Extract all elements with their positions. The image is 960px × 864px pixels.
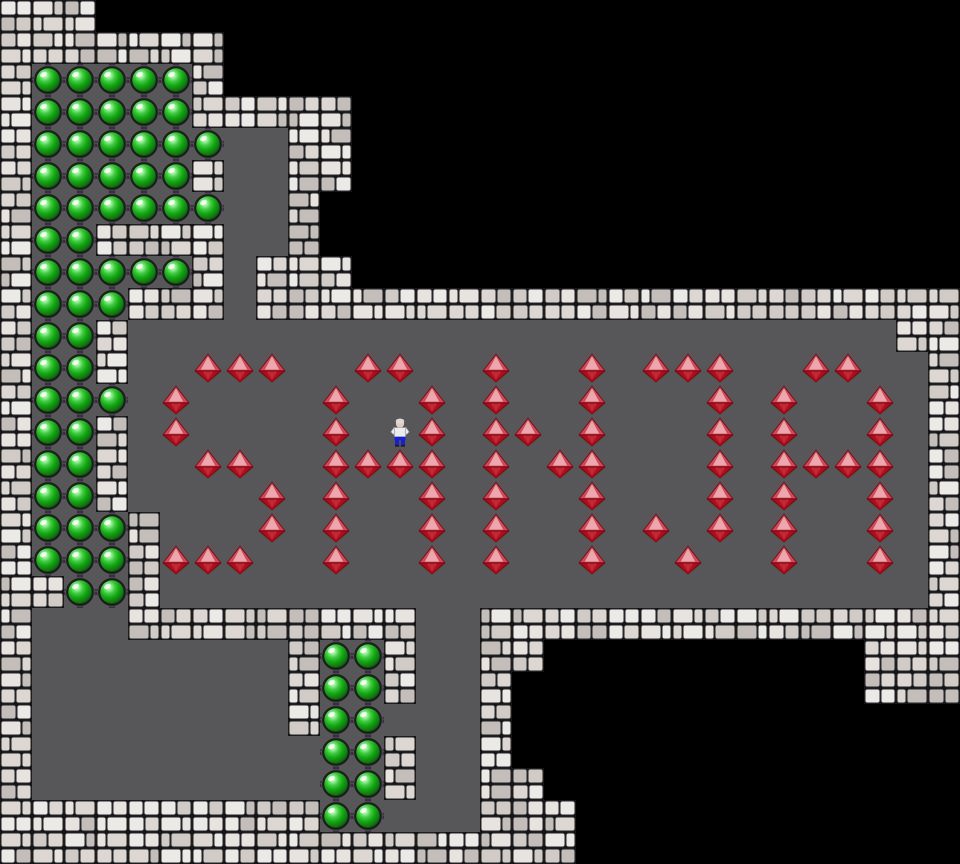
goal-ball[interactable] (162, 258, 191, 287)
wall-tile (0, 736, 32, 768)
floor-tile[interactable] (704, 320, 736, 352)
floor-tile[interactable] (256, 224, 288, 256)
floor-tile[interactable] (256, 160, 288, 192)
floor-tile[interactable] (256, 704, 288, 736)
floor-tile[interactable] (224, 480, 256, 512)
floor-tile[interactable] (672, 416, 704, 448)
floor-tile[interactable] (736, 480, 768, 512)
floor-tile[interactable] (128, 384, 160, 416)
floor-tile[interactable] (448, 448, 480, 480)
floor-tile[interactable] (448, 384, 480, 416)
goal-ball[interactable] (194, 194, 223, 223)
floor-tile[interactable] (448, 672, 480, 704)
wall-tile (640, 288, 672, 320)
floor-tile[interactable] (448, 640, 480, 672)
floor-tile[interactable] (608, 512, 640, 544)
floor-tile[interactable] (352, 480, 384, 512)
floor-tile[interactable] (224, 160, 256, 192)
goal-ball[interactable] (98, 162, 127, 191)
floor-tile[interactable] (160, 640, 192, 672)
goal-ball[interactable] (322, 738, 351, 767)
floor-tile[interactable] (224, 512, 256, 544)
floor-tile[interactable] (896, 448, 928, 480)
floor-tile[interactable] (640, 544, 672, 576)
floor-tile[interactable] (32, 672, 64, 704)
floor-tile[interactable] (640, 448, 672, 480)
floor-tile[interactable] (96, 640, 128, 672)
floor-tile[interactable] (448, 576, 480, 608)
floor-tile[interactable] (288, 768, 320, 800)
floor-tile[interactable] (800, 320, 832, 352)
floor-tile[interactable] (608, 480, 640, 512)
goal-ball[interactable] (34, 162, 63, 191)
floor-tile[interactable] (128, 480, 160, 512)
wall-tile (160, 608, 192, 640)
floor-tile[interactable] (192, 384, 224, 416)
goal-ball[interactable] (354, 738, 383, 767)
floor-tile[interactable] (352, 320, 384, 352)
goal-ball[interactable] (98, 290, 127, 319)
floor-tile[interactable] (128, 736, 160, 768)
floor-tile[interactable] (704, 576, 736, 608)
floor-tile[interactable] (864, 352, 896, 384)
goal-ball[interactable] (66, 66, 95, 95)
floor-tile[interactable] (96, 672, 128, 704)
floor-tile[interactable] (224, 128, 256, 160)
goal-ball[interactable] (34, 130, 63, 159)
goal-ball[interactable] (34, 290, 63, 319)
floor-tile[interactable] (256, 448, 288, 480)
floor-tile[interactable] (352, 512, 384, 544)
floor-tile[interactable] (736, 448, 768, 480)
floor-tile[interactable] (544, 544, 576, 576)
goal-ball[interactable] (34, 482, 63, 511)
floor-tile[interactable] (352, 544, 384, 576)
floor-tile[interactable] (128, 320, 160, 352)
floor-tile[interactable] (256, 768, 288, 800)
goal-ball[interactable] (130, 130, 159, 159)
floor-tile[interactable] (64, 704, 96, 736)
goal-ball[interactable] (66, 450, 95, 479)
floor-tile[interactable] (384, 576, 416, 608)
floor-tile[interactable] (384, 512, 416, 544)
goal-ball[interactable] (66, 354, 95, 383)
floor-tile[interactable] (256, 384, 288, 416)
floor-tile[interactable] (800, 480, 832, 512)
goal-ball[interactable] (98, 130, 127, 159)
goal-ball[interactable] (130, 258, 159, 287)
floor-tile[interactable] (896, 512, 928, 544)
floor-tile[interactable] (320, 576, 352, 608)
floor-tile[interactable] (224, 736, 256, 768)
sokoban-board[interactable] (0, 0, 960, 864)
goal-ball[interactable] (98, 258, 127, 287)
floor-tile[interactable] (736, 576, 768, 608)
goal-ball[interactable] (66, 162, 95, 191)
floor-tile[interactable] (128, 640, 160, 672)
floor-tile[interactable] (448, 736, 480, 768)
floor-tile[interactable] (896, 352, 928, 384)
floor-tile[interactable] (64, 608, 96, 640)
floor-tile[interactable] (896, 384, 928, 416)
floor-tile[interactable] (192, 736, 224, 768)
floor-tile[interactable] (672, 448, 704, 480)
floor-tile[interactable] (512, 576, 544, 608)
floor-tile[interactable] (32, 640, 64, 672)
goal-ball[interactable] (34, 322, 63, 351)
goal-ball[interactable] (34, 386, 63, 415)
floor-tile[interactable] (416, 576, 448, 608)
floor-tile[interactable] (608, 384, 640, 416)
goal-ball[interactable] (66, 194, 95, 223)
floor-tile[interactable] (768, 576, 800, 608)
floor-tile[interactable] (416, 768, 448, 800)
floor-tile[interactable] (160, 768, 192, 800)
floor-tile[interactable] (832, 416, 864, 448)
floor-tile[interactable] (480, 320, 512, 352)
goal-ball[interactable] (34, 450, 63, 479)
floor-tile[interactable] (32, 736, 64, 768)
goal-ball[interactable] (98, 386, 127, 415)
goal-ball[interactable] (66, 322, 95, 351)
floor-tile[interactable] (608, 352, 640, 384)
floor-tile[interactable] (192, 512, 224, 544)
floor-tile[interactable] (416, 672, 448, 704)
goal-ball[interactable] (162, 98, 191, 127)
floor-tile[interactable] (96, 768, 128, 800)
floor-tile[interactable] (288, 448, 320, 480)
floor-tile[interactable] (832, 512, 864, 544)
floor-tile[interactable] (128, 352, 160, 384)
floor-tile[interactable] (800, 416, 832, 448)
floor-tile[interactable] (160, 512, 192, 544)
floor-tile[interactable] (544, 576, 576, 608)
goal-ball[interactable] (66, 418, 95, 447)
goal-ball[interactable] (98, 514, 127, 543)
floor-tile[interactable] (288, 416, 320, 448)
floor-tile[interactable] (736, 512, 768, 544)
floor-tile[interactable] (512, 544, 544, 576)
goal-ball[interactable] (34, 418, 63, 447)
floor-tile[interactable] (384, 384, 416, 416)
floor-tile[interactable] (192, 480, 224, 512)
floor-tile[interactable] (896, 576, 928, 608)
floor-tile[interactable] (32, 704, 64, 736)
goal-ball[interactable] (354, 802, 383, 831)
goal-ball[interactable] (66, 514, 95, 543)
floor-tile[interactable] (416, 608, 448, 640)
floor-tile[interactable] (672, 480, 704, 512)
floor-tile[interactable] (544, 416, 576, 448)
floor-tile[interactable] (864, 576, 896, 608)
floor-tile[interactable] (640, 576, 672, 608)
floor-tile[interactable] (448, 512, 480, 544)
goal-ball[interactable] (66, 546, 95, 575)
floor-tile[interactable] (864, 320, 896, 352)
goal-ball[interactable] (66, 290, 95, 319)
floor-tile[interactable] (448, 480, 480, 512)
floor-tile[interactable] (576, 576, 608, 608)
floor-tile[interactable] (672, 320, 704, 352)
floor-tile[interactable] (192, 768, 224, 800)
floor-tile[interactable] (800, 576, 832, 608)
floor-tile[interactable] (832, 384, 864, 416)
floor-tile[interactable] (288, 320, 320, 352)
floor-tile[interactable] (224, 768, 256, 800)
floor-tile[interactable] (288, 480, 320, 512)
goal-ball[interactable] (354, 770, 383, 799)
floor-tile[interactable] (128, 416, 160, 448)
floor-tile[interactable] (384, 544, 416, 576)
floor-tile[interactable] (224, 384, 256, 416)
floor-tile[interactable] (416, 736, 448, 768)
floor-tile[interactable] (64, 736, 96, 768)
floor-tile[interactable] (288, 736, 320, 768)
floor-tile[interactable] (160, 672, 192, 704)
floor-tile[interactable] (224, 320, 256, 352)
goal-ball[interactable] (66, 226, 95, 255)
goal-ball[interactable] (322, 642, 351, 671)
floor-tile[interactable] (192, 416, 224, 448)
floor-tile[interactable] (832, 576, 864, 608)
goal-ball[interactable] (322, 802, 351, 831)
floor-tile[interactable] (32, 608, 64, 640)
floor-tile[interactable] (256, 544, 288, 576)
floor-tile[interactable] (224, 704, 256, 736)
floor-tile[interactable] (352, 416, 384, 448)
floor-tile[interactable] (608, 544, 640, 576)
floor-tile[interactable] (256, 672, 288, 704)
floor-tile[interactable] (192, 576, 224, 608)
floor-tile[interactable] (800, 544, 832, 576)
goal-ball[interactable] (34, 226, 63, 255)
floor-tile[interactable] (416, 352, 448, 384)
floor-tile[interactable] (384, 320, 416, 352)
goal-ball[interactable] (130, 194, 159, 223)
floor-tile[interactable] (224, 672, 256, 704)
floor-tile[interactable] (640, 416, 672, 448)
floor-tile[interactable] (672, 512, 704, 544)
floor-tile[interactable] (192, 320, 224, 352)
goal-ball[interactable] (322, 706, 351, 735)
goal-ball[interactable] (354, 642, 383, 671)
floor-tile[interactable] (96, 736, 128, 768)
floor-tile[interactable] (160, 736, 192, 768)
floor-tile[interactable] (736, 320, 768, 352)
goal-ball[interactable] (34, 66, 63, 95)
goal-ball[interactable] (130, 66, 159, 95)
goal-ball[interactable] (162, 162, 191, 191)
floor-tile[interactable] (288, 512, 320, 544)
floor-tile[interactable] (64, 768, 96, 800)
floor-tile[interactable] (544, 480, 576, 512)
floor-tile[interactable] (512, 480, 544, 512)
floor-tile[interactable] (896, 544, 928, 576)
floor-tile[interactable] (64, 640, 96, 672)
floor-tile[interactable] (352, 576, 384, 608)
floor-tile[interactable] (160, 480, 192, 512)
floor-tile[interactable] (512, 352, 544, 384)
floor-tile[interactable] (896, 416, 928, 448)
floor-tile[interactable] (128, 704, 160, 736)
floor-tile[interactable] (224, 640, 256, 672)
floor-tile[interactable] (544, 352, 576, 384)
goal-ball[interactable] (98, 546, 127, 575)
floor-tile[interactable] (352, 384, 384, 416)
wall-tile (448, 288, 480, 320)
floor-tile[interactable] (224, 224, 256, 256)
floor-tile[interactable] (448, 352, 480, 384)
floor-tile[interactable] (768, 352, 800, 384)
floor-tile[interactable] (800, 384, 832, 416)
floor-tile[interactable] (320, 320, 352, 352)
floor-tile[interactable] (192, 704, 224, 736)
floor-tile[interactable] (96, 704, 128, 736)
floor-tile[interactable] (448, 320, 480, 352)
goal-ball[interactable] (98, 194, 127, 223)
floor-tile[interactable] (672, 576, 704, 608)
goal-ball[interactable] (98, 66, 127, 95)
goal-ball[interactable] (162, 194, 191, 223)
floor-tile[interactable] (448, 544, 480, 576)
floor-tile[interactable] (896, 480, 928, 512)
floor-tile[interactable] (256, 416, 288, 448)
floor-tile[interactable] (128, 448, 160, 480)
floor-tile[interactable] (160, 352, 192, 384)
goal-ball[interactable] (66, 482, 95, 511)
floor-tile[interactable] (128, 768, 160, 800)
goal-ball[interactable] (66, 578, 95, 607)
floor-tile[interactable] (736, 544, 768, 576)
floor-tile[interactable] (768, 320, 800, 352)
floor-tile[interactable] (256, 192, 288, 224)
floor-tile[interactable] (448, 608, 480, 640)
floor-tile[interactable] (448, 704, 480, 736)
goal-ball[interactable] (322, 770, 351, 799)
floor-tile[interactable] (448, 768, 480, 800)
goal-ball[interactable] (66, 258, 95, 287)
floor-tile[interactable] (544, 320, 576, 352)
floor-tile[interactable] (160, 704, 192, 736)
floor-tile[interactable] (416, 704, 448, 736)
floor-tile[interactable] (832, 320, 864, 352)
goal-ball[interactable] (98, 578, 127, 607)
wall-tile (128, 800, 160, 832)
floor-tile[interactable] (224, 576, 256, 608)
floor-tile[interactable] (800, 512, 832, 544)
goal-ball[interactable] (34, 194, 63, 223)
floor-tile[interactable] (320, 352, 352, 384)
floor-tile[interactable] (256, 320, 288, 352)
goal-ball[interactable] (194, 130, 223, 159)
floor-tile[interactable] (160, 448, 192, 480)
floor-tile[interactable] (288, 384, 320, 416)
floor-tile[interactable] (736, 384, 768, 416)
floor-tile[interactable] (512, 320, 544, 352)
floor-tile[interactable] (256, 736, 288, 768)
goal-ball[interactable] (162, 66, 191, 95)
goal-ball[interactable] (34, 514, 63, 543)
floor-tile[interactable] (448, 800, 480, 832)
floor-tile[interactable] (832, 544, 864, 576)
floor-tile[interactable] (704, 544, 736, 576)
floor-tile[interactable] (640, 480, 672, 512)
goal-ball[interactable] (322, 674, 351, 703)
goal-ball[interactable] (130, 98, 159, 127)
floor-tile[interactable] (256, 640, 288, 672)
goal-ball[interactable] (130, 162, 159, 191)
floor-tile[interactable] (128, 672, 160, 704)
goal-ball[interactable] (354, 706, 383, 735)
floor-tile[interactable] (224, 288, 256, 320)
goal-ball[interactable] (66, 386, 95, 415)
floor-tile[interactable] (608, 416, 640, 448)
goal-ball[interactable] (66, 130, 95, 159)
floor-tile[interactable] (256, 576, 288, 608)
floor-tile[interactable] (416, 640, 448, 672)
floor-tile[interactable] (96, 608, 128, 640)
floor-tile[interactable] (192, 672, 224, 704)
goal-ball[interactable] (34, 354, 63, 383)
floor-tile[interactable] (640, 320, 672, 352)
goal-ball[interactable] (354, 674, 383, 703)
floor-tile[interactable] (256, 128, 288, 160)
floor-tile[interactable] (544, 384, 576, 416)
wall-tile (0, 416, 32, 448)
floor-tile[interactable] (224, 256, 256, 288)
floor-tile[interactable] (224, 192, 256, 224)
floor-tile[interactable] (160, 320, 192, 352)
goal-ball[interactable] (66, 98, 95, 127)
floor-tile[interactable] (416, 320, 448, 352)
floor-tile[interactable] (544, 512, 576, 544)
floor-tile[interactable] (288, 576, 320, 608)
floor-tile[interactable] (512, 512, 544, 544)
floor-tile[interactable] (736, 352, 768, 384)
floor-tile[interactable] (64, 672, 96, 704)
floor-tile[interactable] (512, 384, 544, 416)
goal-ball[interactable] (162, 130, 191, 159)
goal-ball[interactable] (34, 98, 63, 127)
floor-tile[interactable] (576, 320, 608, 352)
floor-tile[interactable] (288, 544, 320, 576)
goal-ball[interactable] (98, 98, 127, 127)
floor-tile[interactable] (160, 576, 192, 608)
wall-tile (576, 608, 608, 640)
floor-tile[interactable] (224, 416, 256, 448)
floor-tile[interactable] (480, 576, 512, 608)
floor-tile[interactable] (608, 448, 640, 480)
goal-ball[interactable] (34, 258, 63, 287)
goal-ball[interactable] (34, 546, 63, 575)
floor-tile[interactable] (608, 320, 640, 352)
floor-tile[interactable] (32, 768, 64, 800)
floor-tile[interactable] (736, 416, 768, 448)
floor-tile[interactable] (384, 800, 416, 832)
floor-tile[interactable] (288, 352, 320, 384)
floor-tile[interactable] (448, 416, 480, 448)
floor-tile[interactable] (832, 480, 864, 512)
floor-tile[interactable] (672, 384, 704, 416)
floor-tile[interactable] (608, 576, 640, 608)
floor-tile[interactable] (416, 800, 448, 832)
floor-tile[interactable] (384, 480, 416, 512)
floor-tile[interactable] (192, 640, 224, 672)
floor-tile[interactable] (384, 704, 416, 736)
wall-tile (288, 832, 320, 864)
floor-tile[interactable] (640, 384, 672, 416)
floor-tile[interactable] (512, 448, 544, 480)
